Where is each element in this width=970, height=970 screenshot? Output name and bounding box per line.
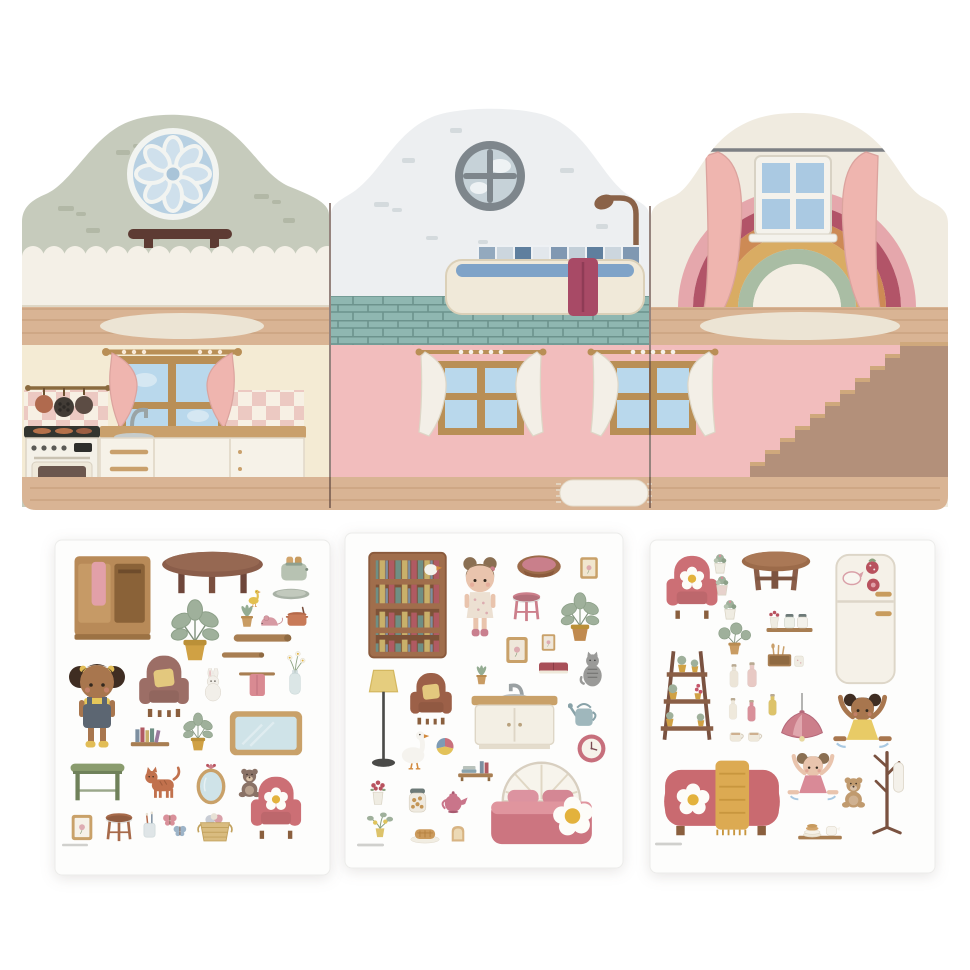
wardrobe-with-towel-sticker	[75, 556, 151, 640]
upper-floor	[22, 307, 329, 345]
serving-tray-sticker	[273, 589, 310, 599]
picket-fence	[22, 246, 338, 307]
sticker-sheet-2	[345, 533, 623, 868]
porthole-window	[455, 141, 525, 211]
frame-botanical-2-sticker	[542, 634, 556, 650]
oval-rug-right	[700, 312, 900, 340]
backdrop-panel-middle	[331, 109, 649, 507]
picture-frame-sticker	[72, 815, 93, 840]
bread-sticker	[452, 826, 465, 842]
blue-board-sticker	[230, 711, 302, 755]
sticker-sheet-3	[650, 540, 935, 873]
copper-pan	[35, 395, 53, 413]
wall-clock-sticker	[578, 735, 606, 763]
attic-floor	[651, 307, 948, 345]
dollhouse-backdrop	[22, 109, 948, 510]
toy-ball-sticker	[437, 738, 454, 755]
dark-pan	[75, 396, 93, 414]
backdrop-panel-left	[22, 115, 338, 507]
fine-print-sticker	[655, 843, 682, 846]
bookcase-sticker	[369, 553, 446, 658]
sofa-with-blanket-sticker	[664, 761, 780, 836]
sticker-sheet-1	[55, 540, 330, 875]
fringed-rug	[560, 480, 648, 506]
oval-rug	[100, 313, 264, 339]
ground-floor	[22, 477, 948, 510]
shelf-board-short-sticker	[222, 652, 264, 657]
cookie-jar-sticker	[409, 788, 426, 812]
fine-print-sticker	[62, 844, 88, 847]
attic-window	[749, 156, 837, 242]
backdrop-panel-right	[651, 113, 948, 507]
fridge-with-magnets-sticker	[836, 555, 894, 683]
fine-print-sticker	[357, 844, 384, 847]
red-book-sticker	[539, 663, 568, 674]
bathtub	[446, 258, 644, 316]
shelf-board-long-sticker	[234, 634, 292, 641]
dollhouse-sticker-book-image	[0, 0, 970, 970]
frame-flowers-sticker	[580, 557, 598, 578]
pink-room-window-left	[416, 349, 547, 437]
pink-room-window-right	[588, 349, 719, 437]
rosette-window	[127, 128, 219, 220]
frame-botanical-1-sticker	[506, 637, 527, 663]
pet-bed-sticker	[517, 555, 561, 577]
